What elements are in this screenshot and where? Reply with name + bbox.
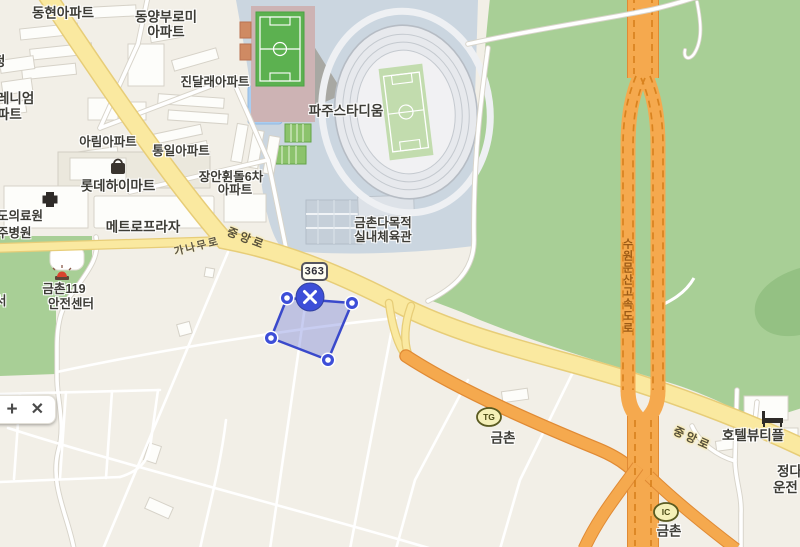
- label-jangan-apt-line2: 아파트: [218, 184, 253, 197]
- tollgate-badge-label: TG: [483, 413, 495, 422]
- label-tongil-apt: 통일아파트: [152, 145, 210, 158]
- vertex-handle[interactable]: [321, 353, 336, 368]
- label-hotel-beauty: 호텔뷰티플: [722, 429, 784, 443]
- label-dongyang-buromi-apt-line1: 동양부로미: [135, 10, 197, 24]
- label-geumchon-ic: 금촌: [657, 524, 682, 538]
- label-donghyun-apt: 동현아파트: [32, 6, 94, 20]
- roadlabel-expressway: 수원문산고속도로: [621, 238, 632, 334]
- route-badge-label: 363: [305, 266, 325, 277]
- label-partial-seo: 서: [0, 295, 7, 308]
- label-partial-jeongda: 정다: [777, 465, 800, 479]
- delete-polygon-button[interactable]: [296, 283, 324, 311]
- label-partial-hospital-line1: 도의료원: [0, 210, 43, 223]
- label-gym-line2: 실내체육관: [354, 231, 412, 244]
- label-geumchon-119-line1: 금촌119: [42, 283, 85, 296]
- label-partial-hospital-line2: 주병원: [0, 227, 32, 240]
- label-partial-unjeon: 운전: [773, 481, 798, 495]
- label-jindalrae-apt: 진달래아파트: [180, 76, 249, 89]
- label-metro-plaza: 메트로프라자: [106, 220, 181, 234]
- label-geumchon-tg: 금촌: [491, 431, 516, 445]
- map-toolbar: + ✕: [0, 395, 56, 424]
- soccer-field-nw: [240, 6, 315, 122]
- close-button[interactable]: ✕: [31, 402, 44, 418]
- label-dongyang-buromi-apt-line2: 아파트: [147, 25, 184, 39]
- label-partial-millennium-line1: 레니엄: [0, 92, 34, 106]
- interchange-badge-label: IC: [662, 508, 671, 517]
- label-jangan-apt-line1: 장안휜돌6차: [199, 171, 263, 184]
- map-canvas[interactable]: 동현아파트 동양부로미 아파트 진달래아파트 정 레니엄 파트 아림아파트 통일…: [0, 0, 800, 547]
- label-paju-stadium: 파주스타디움: [309, 104, 384, 118]
- label-arim-apt: 아림아파트: [79, 136, 137, 149]
- vertex-handle[interactable]: [280, 291, 295, 306]
- label-geumchon-119-line2: 안전센터: [48, 298, 94, 311]
- vertex-handle[interactable]: [345, 296, 360, 311]
- zoom-in-button[interactable]: +: [6, 400, 17, 419]
- map-art: [0, 0, 800, 547]
- label-lotte-himart: 롯데하이마트: [81, 179, 156, 193]
- vertex-handle[interactable]: [264, 331, 279, 346]
- label-gym-line1: 금촌다목적: [354, 217, 412, 230]
- label-partial-jeong: 정: [0, 55, 5, 69]
- label-partial-millennium-line2: 파트: [0, 108, 22, 122]
